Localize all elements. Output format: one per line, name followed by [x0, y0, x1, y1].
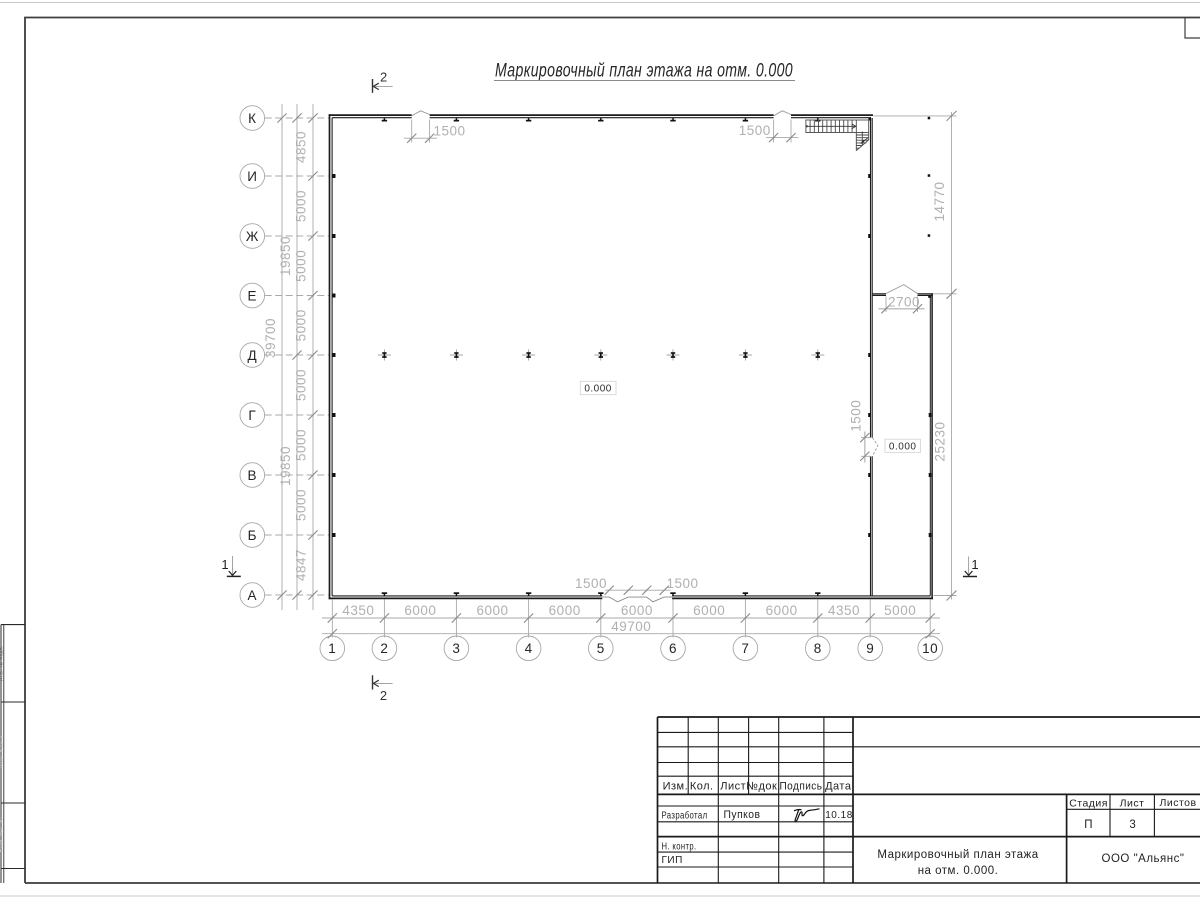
svg-text:5000: 5000 — [294, 309, 309, 341]
svg-text:9: 9 — [866, 641, 874, 656]
svg-text:Маркировочный план этажа на от: Маркировочный план этажа на отм. 0.000 — [495, 61, 793, 82]
svg-text:Инв. № подл.: Инв. № подл. — [0, 645, 5, 681]
svg-text:Н. контр.: Н. контр. — [662, 841, 697, 852]
svg-text:Г: Г — [248, 408, 256, 423]
svg-text:10: 10 — [922, 641, 938, 656]
svg-text:1500: 1500 — [434, 124, 466, 139]
svg-text:5: 5 — [597, 641, 605, 656]
svg-text:49700: 49700 — [611, 619, 651, 634]
svg-text:3: 3 — [1129, 819, 1136, 831]
svg-text:4850: 4850 — [294, 131, 309, 163]
svg-text:19850: 19850 — [278, 236, 293, 276]
svg-text:Ж: Ж — [246, 229, 259, 244]
svg-text:Лист: Лист — [1120, 797, 1145, 809]
svg-text:0.000: 0.000 — [889, 441, 917, 452]
svg-text:25230: 25230 — [933, 421, 948, 461]
svg-text:6000: 6000 — [766, 603, 798, 618]
svg-text:6000: 6000 — [404, 603, 436, 618]
svg-text:6000: 6000 — [693, 603, 725, 618]
svg-text:Подп. и дата: Подп. и дата — [0, 736, 4, 769]
svg-text:4847: 4847 — [294, 549, 309, 581]
svg-text:Кол.: Кол. — [690, 780, 714, 792]
svg-text:8: 8 — [814, 641, 822, 656]
svg-text:ООО "Альянс": ООО "Альянс" — [1102, 853, 1185, 865]
svg-text:2: 2 — [380, 688, 388, 703]
svg-text:1: 1 — [971, 557, 979, 572]
svg-text:39700: 39700 — [263, 318, 278, 358]
svg-text:Б: Б — [248, 528, 257, 543]
svg-text:Взам. инв. №: Взам. инв. № — [0, 818, 4, 852]
svg-text:6000: 6000 — [476, 603, 508, 618]
svg-text:П: П — [1084, 819, 1093, 831]
svg-text:4350: 4350 — [828, 603, 860, 618]
svg-text:Дата: Дата — [825, 780, 852, 792]
svg-text:19850: 19850 — [278, 446, 293, 486]
svg-text:1500: 1500 — [575, 576, 607, 591]
svg-text:5000: 5000 — [294, 369, 309, 401]
svg-text:7: 7 — [741, 641, 749, 656]
svg-text:0.000: 0.000 — [584, 384, 612, 395]
svg-text:6000: 6000 — [621, 603, 653, 618]
svg-text:1: 1 — [328, 641, 336, 656]
svg-text:Лист: Лист — [720, 780, 746, 792]
svg-text:2: 2 — [380, 641, 388, 656]
svg-text:Подпись: Подпись — [780, 780, 823, 792]
svg-text:1: 1 — [221, 557, 229, 572]
svg-text:Д: Д — [247, 348, 257, 363]
svg-text:Листов: Листов — [1159, 797, 1196, 809]
svg-text:ГИП: ГИП — [662, 855, 683, 866]
svg-text:Маркировочный план этажа: Маркировочный план этажа — [877, 849, 1038, 861]
svg-text:№док.: №док. — [746, 780, 781, 792]
svg-text:В: В — [248, 468, 258, 483]
svg-text:2700: 2700 — [888, 294, 920, 309]
svg-text:Изм.: Изм. — [663, 780, 689, 792]
svg-text:10.18: 10.18 — [825, 810, 853, 821]
svg-text:3: 3 — [452, 641, 460, 656]
svg-text:Е: Е — [248, 288, 258, 303]
svg-text:1500: 1500 — [667, 576, 699, 591]
svg-text:И: И — [247, 169, 257, 184]
svg-text:6000: 6000 — [549, 603, 581, 618]
svg-text:5000: 5000 — [294, 429, 309, 461]
svg-text:Разработал: Разработал — [662, 810, 708, 822]
svg-text:К: К — [248, 111, 256, 126]
svg-text:Пупков: Пупков — [724, 809, 761, 821]
svg-text:А: А — [248, 588, 258, 603]
svg-text:Стадия: Стадия — [1069, 797, 1108, 809]
svg-text:14770: 14770 — [932, 181, 947, 221]
svg-text:5000: 5000 — [294, 250, 309, 282]
svg-text:5000: 5000 — [884, 603, 916, 618]
svg-text:на отм. 0.000.: на отм. 0.000. — [918, 865, 999, 877]
svg-text:5000: 5000 — [294, 489, 309, 521]
svg-text:1500: 1500 — [739, 123, 771, 138]
svg-text:2: 2 — [380, 70, 388, 85]
svg-text:5000: 5000 — [294, 190, 309, 222]
svg-text:6: 6 — [669, 641, 677, 656]
svg-text:1500: 1500 — [849, 400, 864, 432]
svg-text:4350: 4350 — [342, 603, 374, 618]
svg-text:4: 4 — [525, 641, 533, 656]
